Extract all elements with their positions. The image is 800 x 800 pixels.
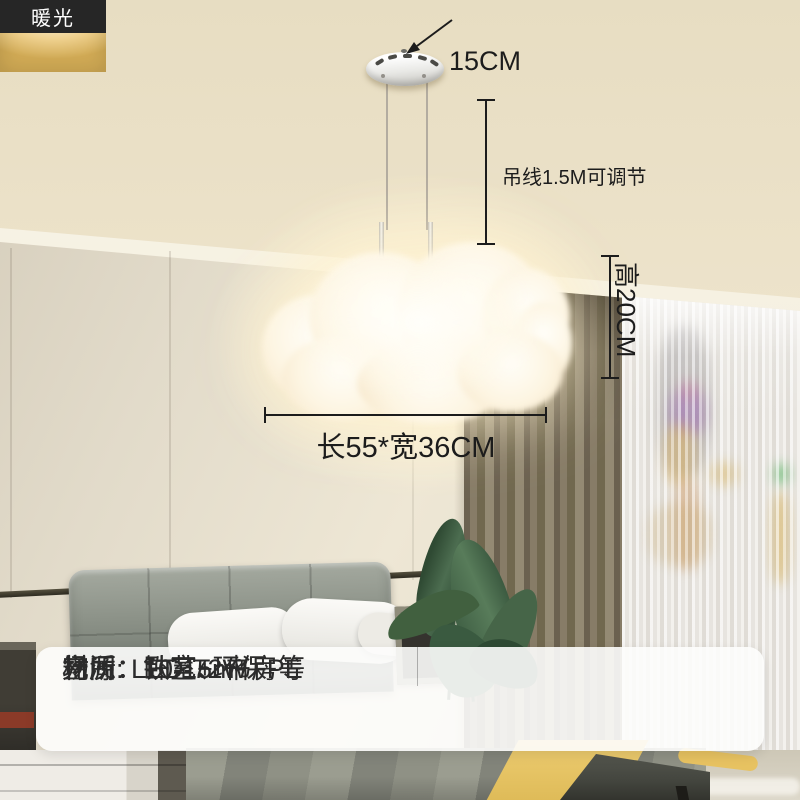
canopy-size-label: 15CM — [449, 46, 521, 77]
screw — [381, 74, 385, 78]
city-light — [670, 388, 706, 436]
cord-length-label: 吊线1.5M可调节 — [502, 161, 646, 190]
lamp-height-label: 高20CM — [609, 262, 646, 357]
city-light — [772, 492, 789, 584]
cloud-lamp — [262, 240, 574, 428]
nightstand — [0, 750, 186, 800]
books — [0, 712, 34, 728]
hanging-wire — [386, 80, 388, 230]
spec-table: 材质：铁艺+环保PE 光源: LED-72W 空间：10-15m² 场所：卧室、… — [36, 647, 764, 751]
screw — [422, 74, 426, 78]
wall-seam — [10, 248, 12, 598]
rug — [700, 778, 800, 795]
city-light — [680, 380, 698, 400]
ceiling-mount — [366, 48, 444, 86]
product-image: 15CM 吊线1.5M可调节 高20CM 长55*宽36CM 白光 中性光 暖光… — [0, 0, 800, 800]
nightstand-decor — [0, 642, 36, 754]
wall-seam — [169, 251, 171, 595]
cloud-lamp-glow-core — [302, 265, 534, 393]
hanging-wire — [426, 80, 428, 230]
lamp-size-label: 长55*宽36CM — [265, 424, 547, 466]
spec-place: 场所：卧室、书房等 — [36, 647, 305, 686]
vent-slot — [403, 54, 412, 58]
light-option-label: 暖光 — [0, 0, 106, 33]
mount-hole — [401, 49, 407, 53]
city-silhouette — [658, 326, 710, 476]
city-light — [674, 478, 700, 570]
city-light — [648, 504, 712, 566]
city-light — [774, 464, 789, 484]
city-light — [664, 424, 696, 486]
city-light — [710, 462, 738, 486]
